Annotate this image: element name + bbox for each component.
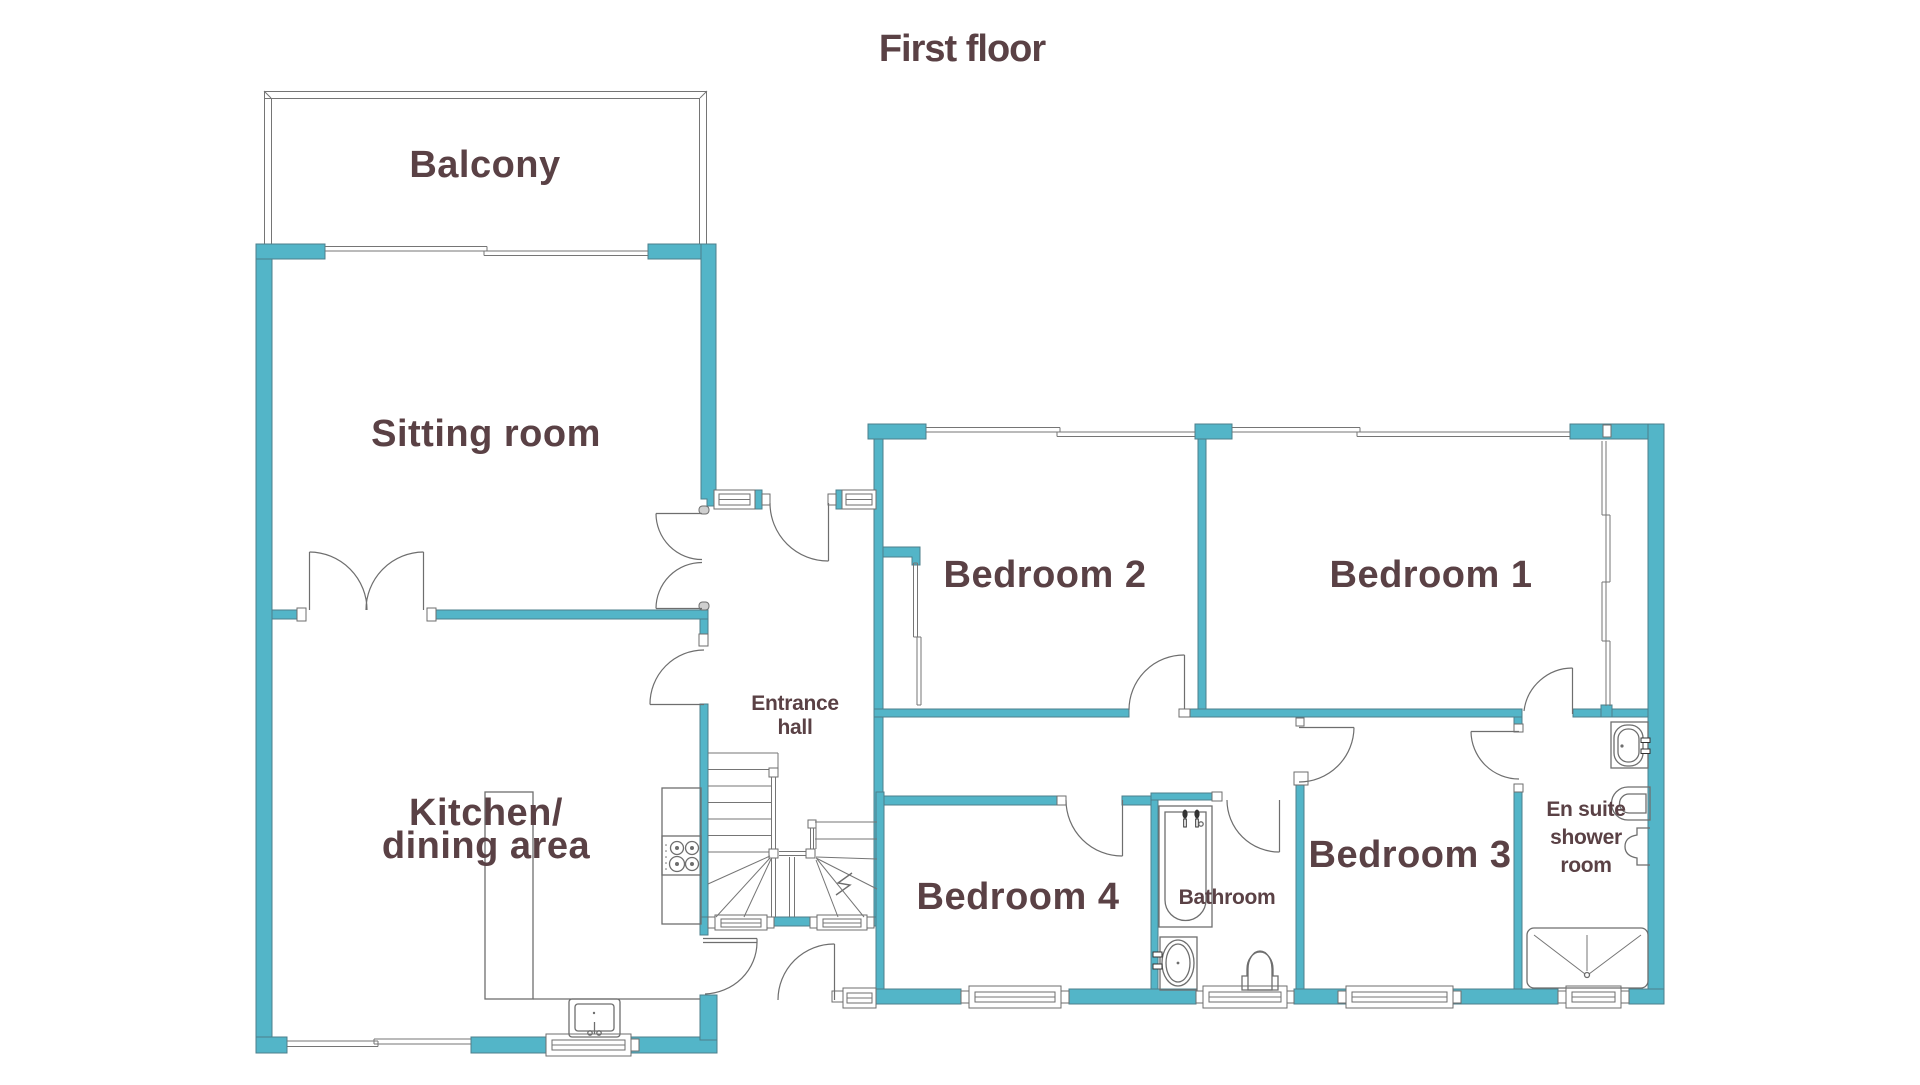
svg-text:Entrance: Entrance xyxy=(751,692,838,715)
svg-text:hall: hall xyxy=(778,716,813,739)
svg-text:Sitting room: Sitting room xyxy=(371,413,601,455)
svg-text:En suite: En suite xyxy=(1546,798,1625,821)
svg-text:Bathroom: Bathroom xyxy=(1179,886,1276,909)
svg-text:Bedroom 2: Bedroom 2 xyxy=(944,554,1147,596)
svg-text:Balcony: Balcony xyxy=(409,144,560,186)
svg-text:First floor: First floor xyxy=(879,28,1047,70)
svg-text:Bedroom 1: Bedroom 1 xyxy=(1330,554,1533,596)
svg-text:shower: shower xyxy=(1550,826,1622,849)
svg-text:room: room xyxy=(1560,854,1611,877)
svg-text:Bedroom 3: Bedroom 3 xyxy=(1309,834,1512,876)
svg-text:Bedroom 4: Bedroom 4 xyxy=(917,876,1120,918)
svg-text:dining area: dining area xyxy=(382,825,591,867)
